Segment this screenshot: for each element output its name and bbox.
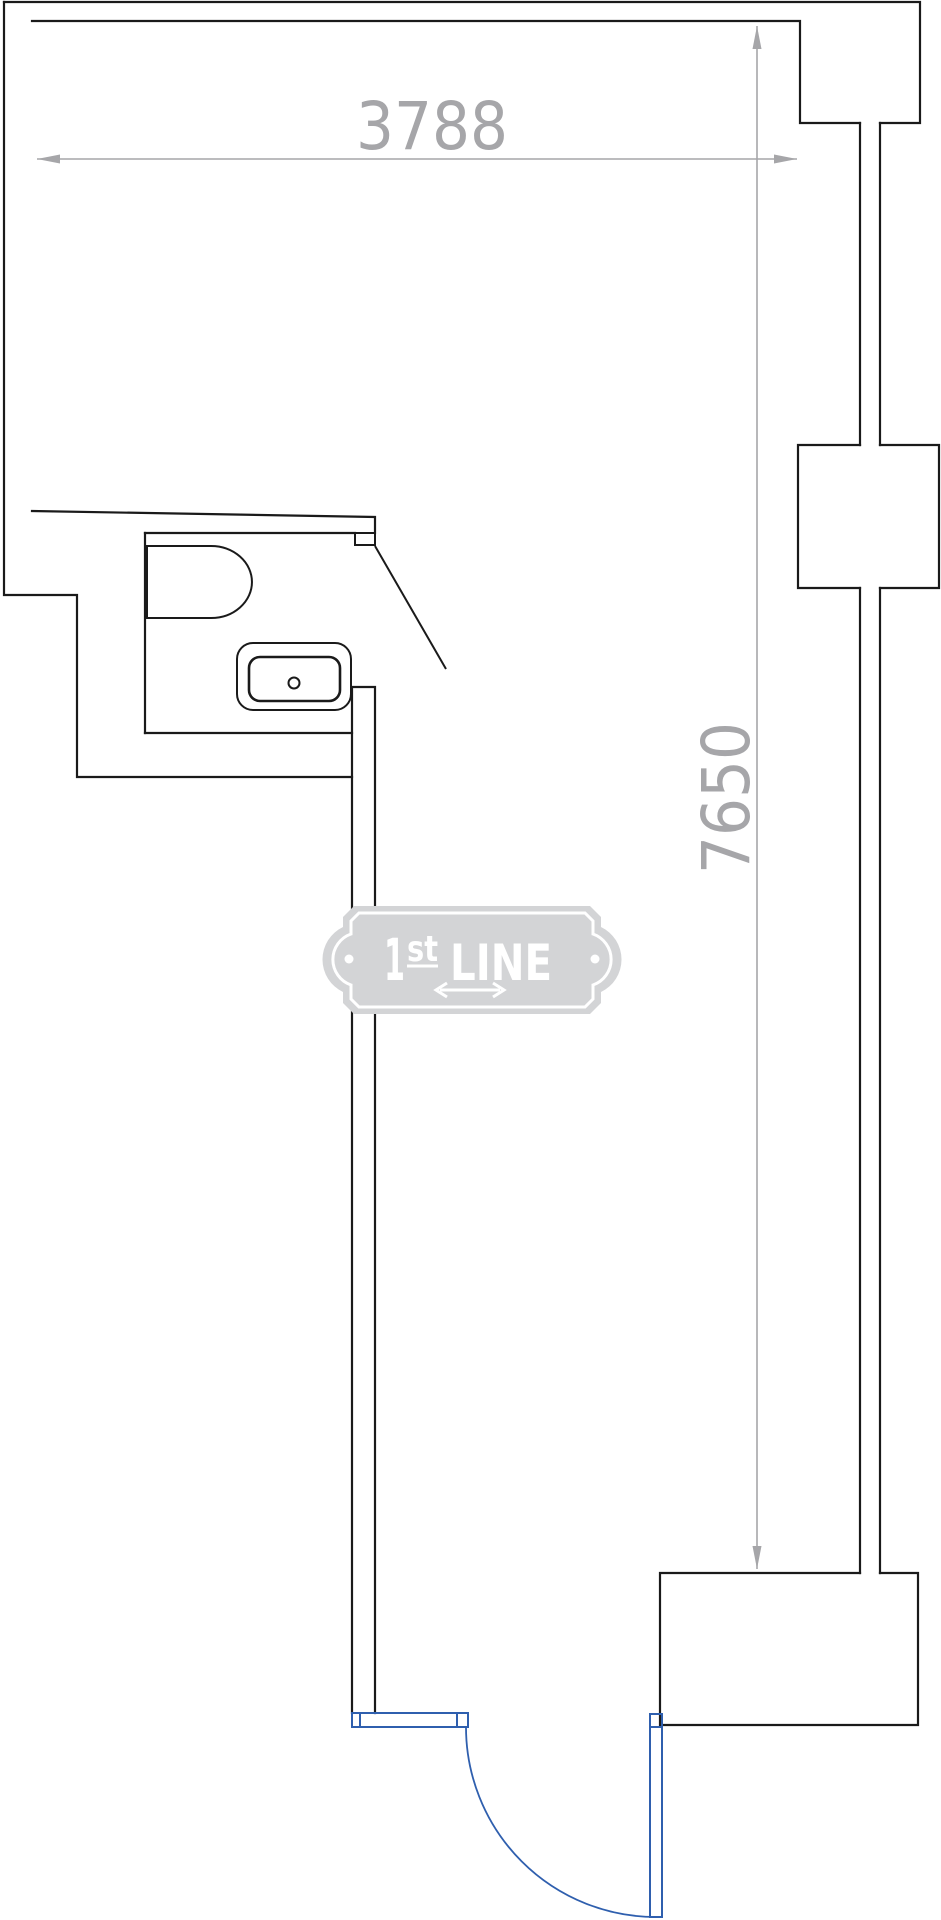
wall-left-outer [4, 2, 352, 777]
bathroom-door-jamb [355, 533, 375, 545]
entrance-block [660, 1573, 918, 1725]
dimension-arrow-right-icon [774, 155, 797, 164]
entrance-door-leaf-active [650, 1714, 662, 1917]
dimension-arrow-left-icon [37, 155, 60, 164]
entrance-door-leaf-inactive-caps [360, 1713, 457, 1727]
dimension-horizontal: 3788 [37, 88, 797, 165]
dimension-label-vertical: 7650 [688, 722, 765, 874]
dimension-arrow-down-icon [753, 1546, 762, 1569]
floor-plan-canvas: 3788 7650 1 st LINE [0, 0, 941, 1920]
floorplan-page: 3788 7650 1 st LINE [0, 0, 941, 1920]
entrance-block-outline [660, 1573, 918, 1725]
dimension-arrow-up-icon [753, 26, 762, 49]
window-track-upper [860, 123, 880, 445]
entrance-door-leaf-inactive [352, 1713, 468, 1727]
washbasin [237, 643, 351, 710]
wall-room-slant [32, 511, 375, 533]
window-mullion-track [860, 123, 880, 1573]
badge-screw-right-icon [591, 955, 600, 964]
dimension-label-horizontal: 3788 [356, 88, 508, 165]
badge-text-rest: LINE [450, 934, 552, 992]
window-track-lower [860, 588, 880, 1573]
entrance-door [352, 1713, 662, 1917]
badge-text-sup: st [407, 929, 438, 970]
bathroom-door-leaf [375, 546, 446, 669]
washbasin-basin [249, 657, 340, 701]
column-middle-outline [798, 445, 939, 588]
door-swing-arc [466, 1727, 656, 1917]
watermark-badge: 1 st LINE [322, 906, 621, 1014]
partition-wall [352, 687, 375, 1713]
toilet [147, 546, 252, 618]
badge-screw-left-icon [345, 955, 354, 964]
washbasin-drain [289, 678, 300, 689]
column-middle [798, 445, 939, 588]
badge-text-main: 1 [384, 926, 405, 994]
dimension-vertical: 7650 [688, 26, 765, 1569]
toilet-bowl [147, 546, 252, 618]
